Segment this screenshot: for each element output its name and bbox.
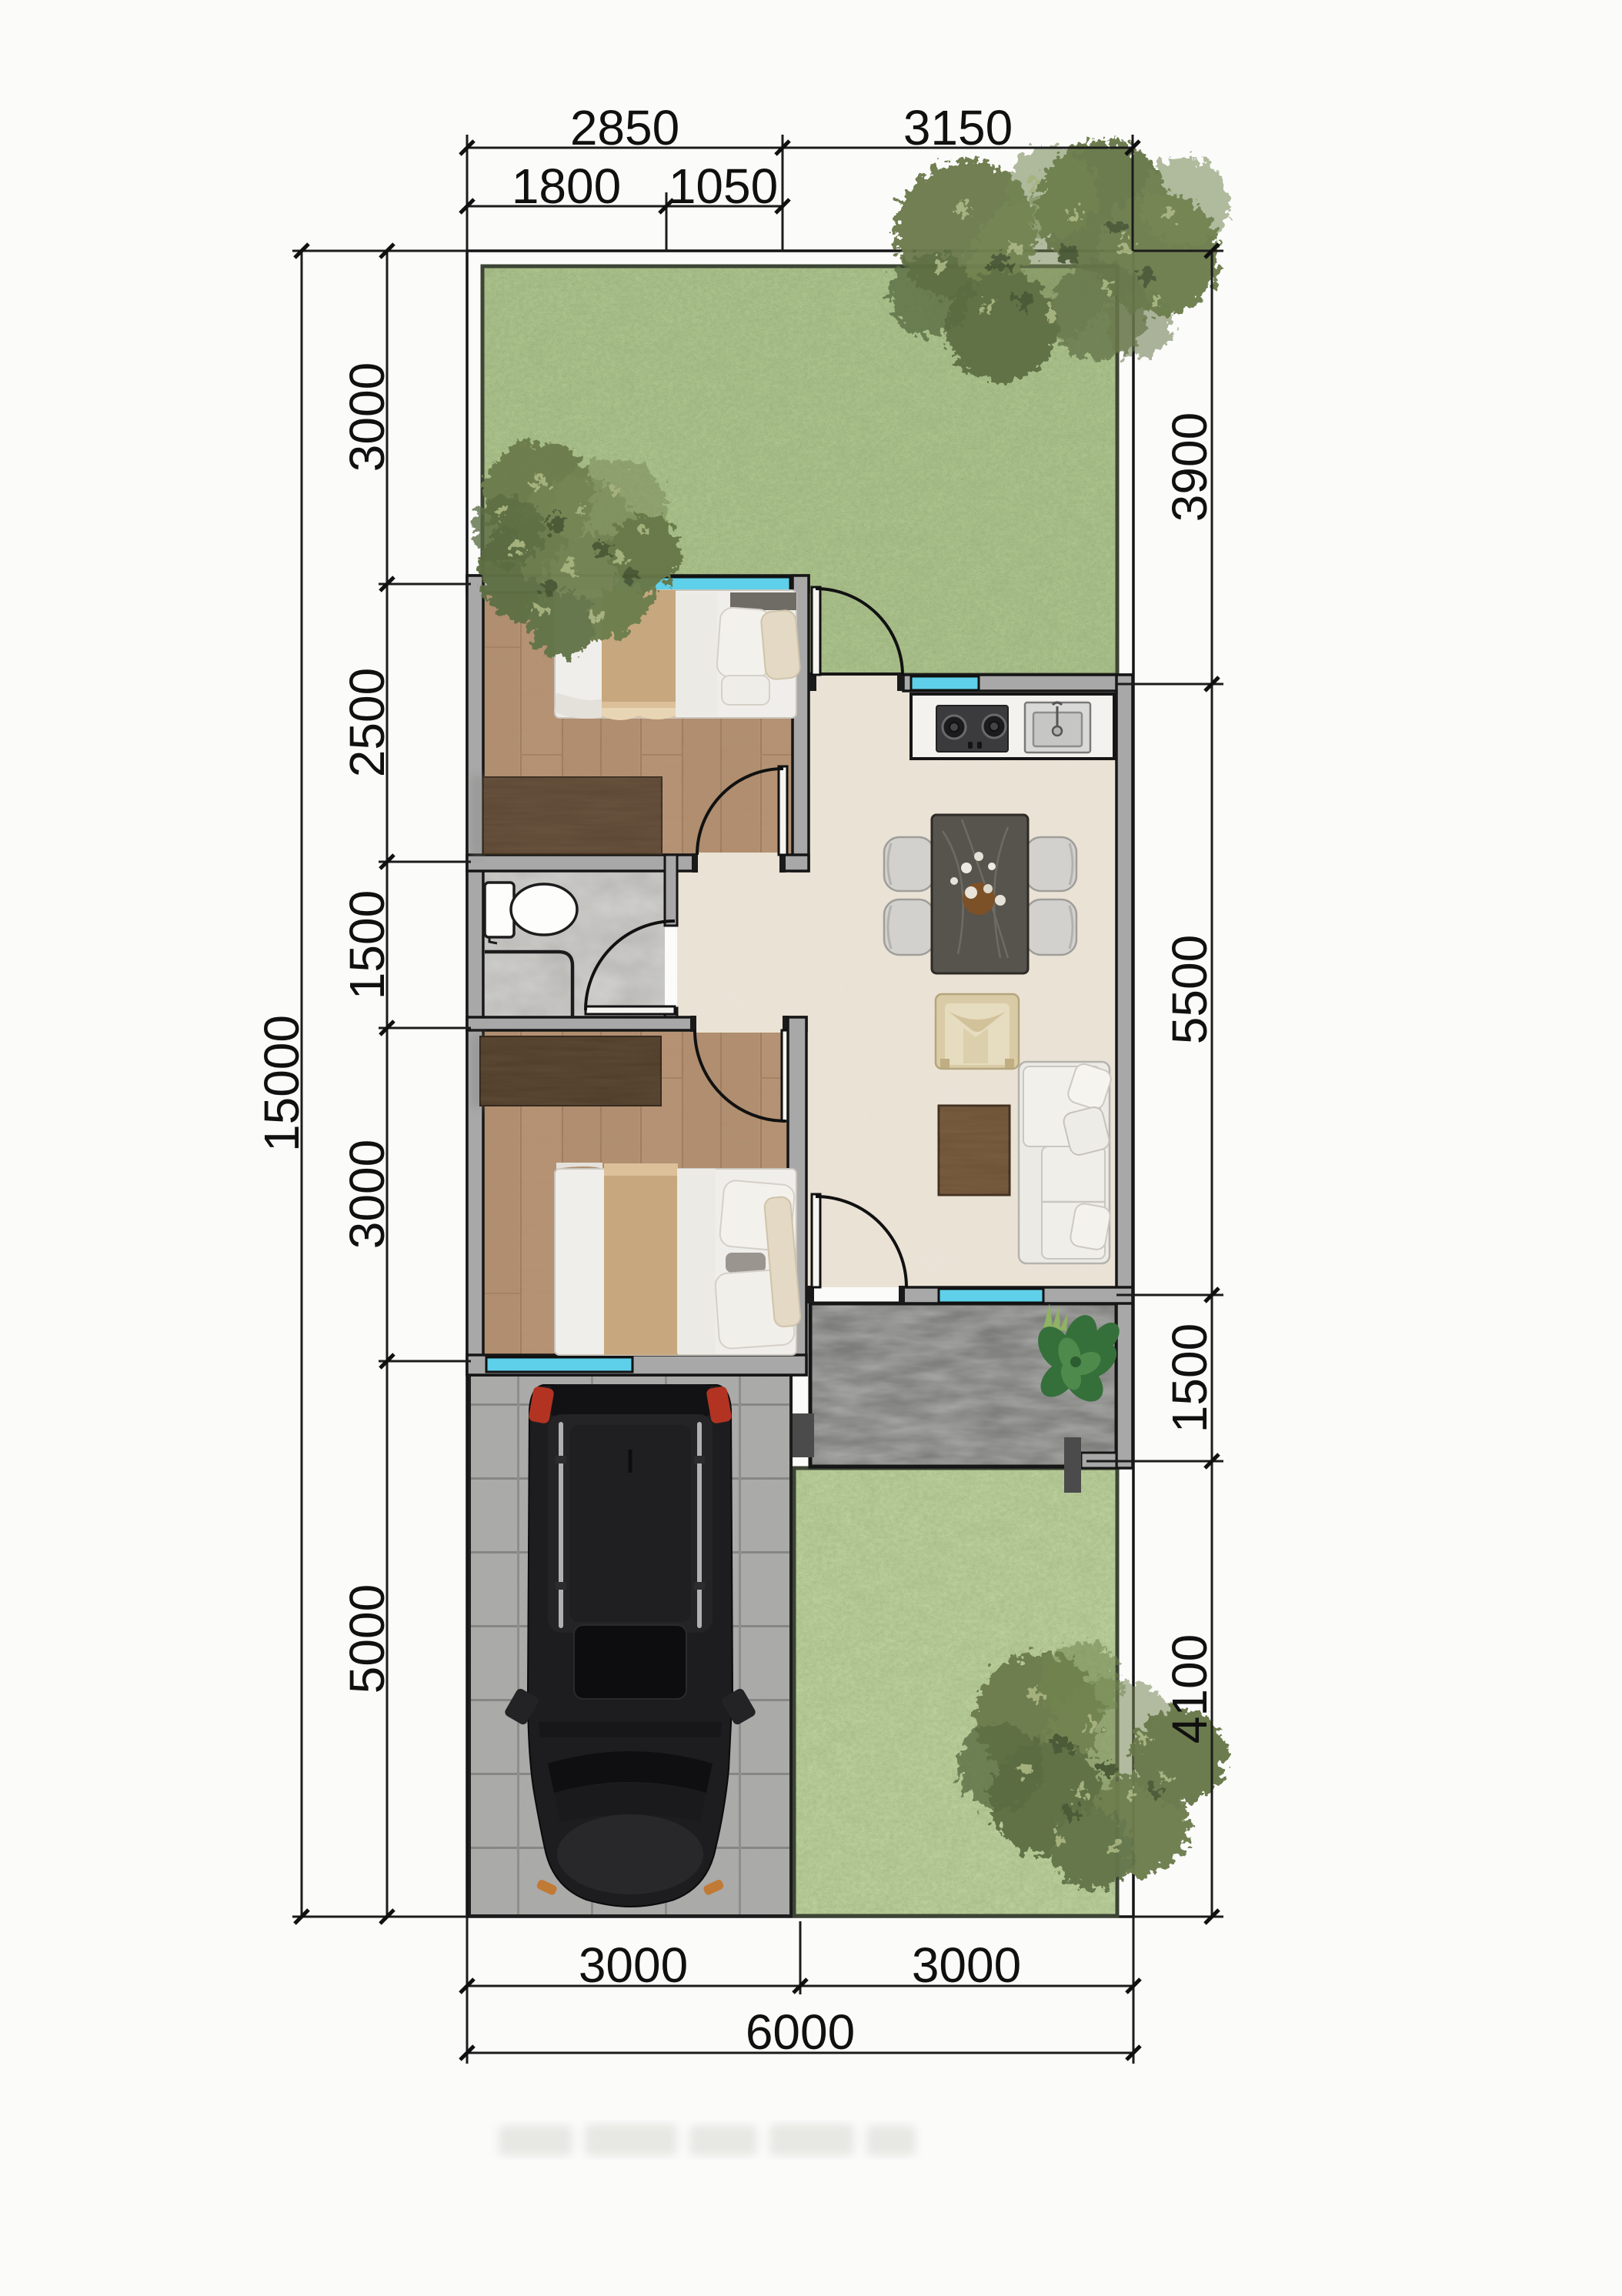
svg-text:5500: 5500 bbox=[1162, 935, 1217, 1044]
svg-text:1500: 1500 bbox=[1162, 1323, 1217, 1433]
svg-text:1500: 1500 bbox=[339, 890, 395, 999]
svg-text:5000: 5000 bbox=[339, 1584, 395, 1694]
svg-text:3150: 3150 bbox=[903, 100, 1013, 155]
svg-text:3000: 3000 bbox=[579, 1937, 688, 1993]
svg-text:6000: 6000 bbox=[746, 2004, 855, 2060]
svg-text:2500: 2500 bbox=[339, 668, 395, 777]
svg-text:2850: 2850 bbox=[570, 100, 679, 155]
svg-text:3900: 3900 bbox=[1162, 412, 1217, 522]
svg-text:1050: 1050 bbox=[669, 159, 778, 214]
svg-text:15000: 15000 bbox=[254, 1015, 309, 1152]
svg-text:1800: 1800 bbox=[512, 159, 621, 214]
svg-text:4100: 4100 bbox=[1162, 1634, 1217, 1744]
svg-text:3000: 3000 bbox=[912, 1937, 1021, 1993]
svg-text:3000: 3000 bbox=[339, 1140, 395, 1249]
svg-text:3000: 3000 bbox=[339, 362, 395, 472]
